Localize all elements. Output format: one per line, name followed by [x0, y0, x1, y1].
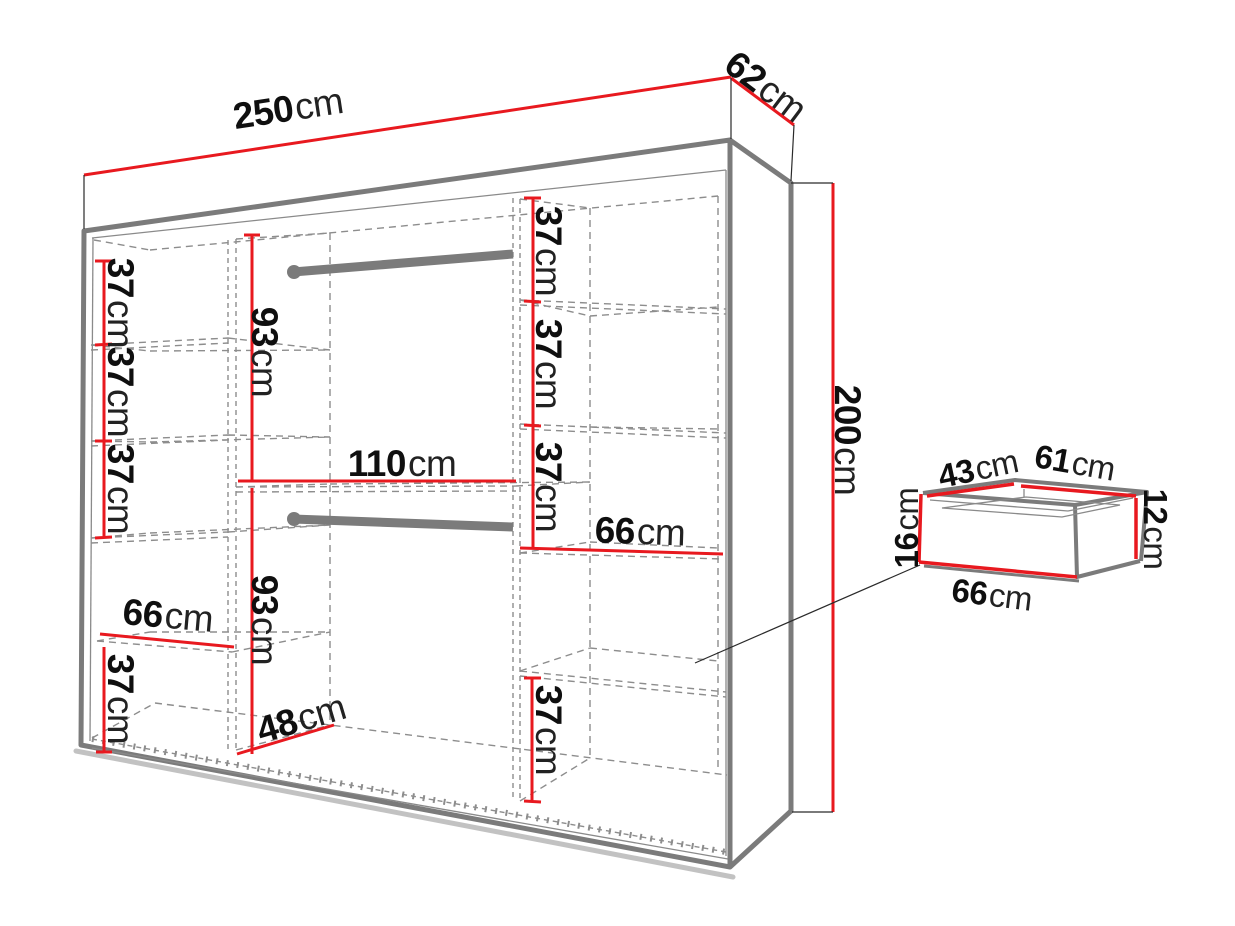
- wardrobe-dimension-diagram: 250cm 62cm 200cm 37cm 37cm 37cm 66cm 37c…: [0, 0, 1235, 926]
- drawer-dim-outer-width: [919, 562, 1077, 577]
- extension-lines: [84, 78, 920, 812]
- dim-label-right-shelf-2: 37cm: [529, 319, 570, 409]
- dimension-lines: [84, 77, 833, 812]
- dim-label-overall-depth: 62cm: [718, 42, 815, 129]
- dim-label-overall-height: 200cm: [828, 385, 869, 496]
- cabinet-outline: [81, 140, 791, 867]
- dim-label-overall-width: 250cm: [230, 79, 345, 136]
- left-wall-inner-edge: [90, 238, 93, 741]
- dim-label-right-bottom: 37cm: [529, 685, 570, 775]
- dim-label-drawer-inner-width: 61cm: [1032, 437, 1118, 487]
- dim-label-floor-depth: 48cm: [252, 685, 350, 750]
- dim-label-right-shelf-width: 66cm: [594, 509, 686, 553]
- dim-label-mid-lower: 93cm: [245, 575, 286, 665]
- dim-label-left-bottom: 37cm: [101, 654, 142, 744]
- dim-label-drawer-front-height: 16cm: [888, 488, 925, 569]
- diagram-canvas: 250cm 62cm 200cm 37cm 37cm 37cm 66cm 37c…: [0, 0, 1235, 926]
- dim-label-mid-width: 110cm: [348, 443, 457, 484]
- dim-label-left-shelf-2: 37cm: [101, 347, 142, 437]
- dim-label-right-shelf-1: 37cm: [529, 206, 570, 296]
- dimension-line-left-shelf-width: [100, 634, 234, 647]
- plinth-top-edge: [92, 748, 728, 859]
- upper-hanging-rod: [293, 254, 513, 272]
- lower-rod-end-cap: [287, 512, 301, 526]
- dim-label-mid-upper: 93cm: [245, 307, 286, 397]
- bottom-panel-hatching: [92, 739, 726, 852]
- wardrobe-body-outline: [76, 140, 791, 877]
- dim-label-left-shelf-1: 37cm: [101, 258, 142, 348]
- dim-label-right-shelf-3: 37cm: [529, 442, 570, 532]
- upper-rod-end-cap: [287, 265, 301, 279]
- dim-label-drawer-inner-height: 12cm: [1138, 489, 1175, 570]
- drawer-detail: [919, 480, 1147, 581]
- dimension-line-overall-width: [84, 77, 731, 175]
- floor-shadow: [76, 751, 733, 877]
- dim-label-left-shelf-width: 66cm: [121, 591, 215, 640]
- dim-label-left-shelf-3: 37cm: [101, 444, 142, 534]
- dim-label-drawer-outer-width: 66cm: [950, 571, 1035, 618]
